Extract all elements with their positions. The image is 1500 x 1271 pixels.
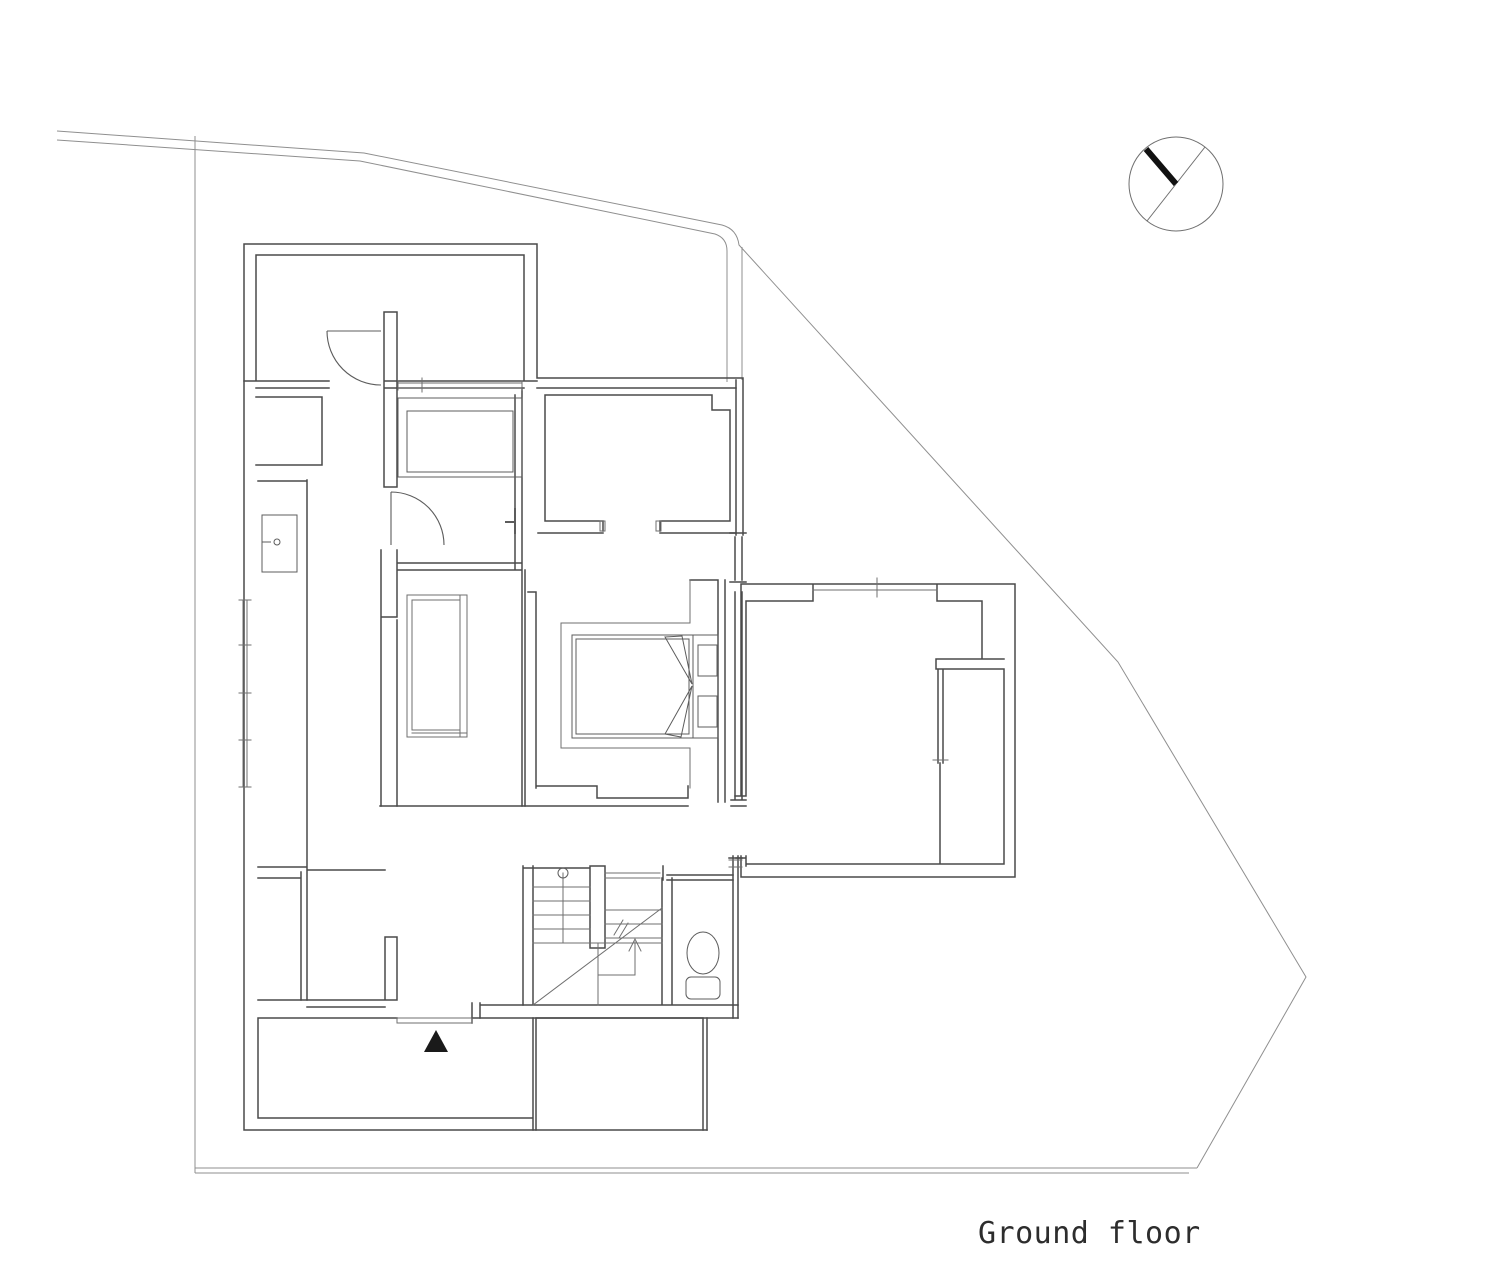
outer-walls bbox=[244, 244, 746, 1130]
toilet bbox=[686, 932, 720, 999]
west-window-band bbox=[239, 600, 251, 787]
fixtures bbox=[262, 398, 720, 999]
bathtub bbox=[398, 398, 522, 477]
kitchen-walls bbox=[256, 397, 385, 1000]
top-left-room-door bbox=[327, 331, 381, 385]
entrance-marker-triangle bbox=[424, 1030, 448, 1052]
tatami-room-walls bbox=[538, 395, 736, 533]
bed-pillow bbox=[698, 696, 717, 727]
stair-up-arrow bbox=[629, 939, 641, 975]
door-symbols bbox=[327, 331, 515, 545]
floor-plan-sheet: Ground floor bbox=[0, 0, 1500, 1271]
right-wing-walls bbox=[735, 584, 1015, 877]
kitchen-sink bbox=[262, 515, 297, 572]
right-wing-window bbox=[813, 578, 937, 597]
porch-walls bbox=[258, 1018, 707, 1130]
stair-hall-window bbox=[605, 873, 660, 878]
bedroom-walls bbox=[380, 537, 746, 1018]
sliding-door-handle bbox=[505, 508, 515, 534]
top-left-room-walls bbox=[244, 255, 736, 487]
bed-platform-outline bbox=[561, 580, 690, 788]
stair-toilet-walls bbox=[472, 866, 738, 1018]
entrance-threshold bbox=[397, 1018, 472, 1023]
interior-spine-walls bbox=[381, 388, 525, 806]
north-arrow-needle bbox=[1146, 149, 1176, 184]
site-boundary-south bbox=[195, 1168, 1197, 1173]
stair-treads bbox=[533, 887, 662, 1005]
entry-walls bbox=[258, 937, 523, 1023]
walk-in-closet bbox=[407, 595, 467, 737]
floor-plan-title: Ground floor bbox=[978, 1216, 1201, 1251]
east-window bbox=[729, 860, 742, 867]
tatami-door-tracks bbox=[600, 521, 661, 531]
floor-plan-drawing: Ground floor bbox=[0, 0, 1500, 1271]
site-boundary-inner bbox=[57, 140, 727, 382]
windows-and-thin-lines bbox=[239, 378, 948, 1023]
bed-blanket-fold bbox=[665, 636, 692, 737]
double-bed bbox=[572, 635, 718, 738]
house-walls bbox=[244, 244, 1015, 1130]
bathroom-window bbox=[398, 378, 522, 392]
washroom-door bbox=[391, 492, 444, 545]
bed-pillow bbox=[698, 645, 717, 676]
north-arrow-icon bbox=[1129, 137, 1223, 231]
